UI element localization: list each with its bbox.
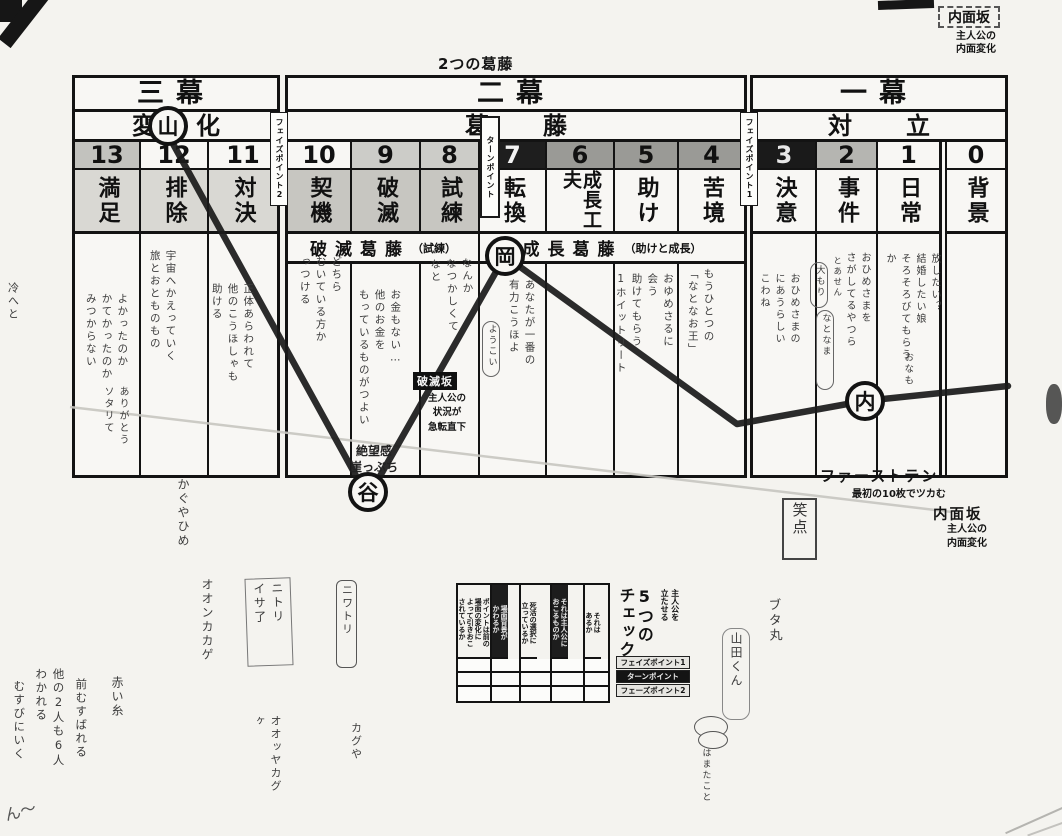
marker-hill: 岡 <box>485 236 525 276</box>
check-cell <box>458 673 490 687</box>
note-col4: もうひとつの 「なとなお王」 <box>684 268 716 380</box>
column-4-number: 4 <box>679 142 744 170</box>
beat-label-nichijo: 日常 <box>897 176 920 226</box>
band-seicho-title: 成長葛藤 <box>523 235 623 260</box>
phase-point-2-box: フェイズポイント2 <box>270 112 288 206</box>
marker-valley: 谷 <box>348 472 388 512</box>
check-cell <box>585 659 608 673</box>
note-col2-bubble-natonama: なとなま <box>816 310 834 390</box>
column-8: 8 試練 <box>421 142 480 234</box>
doodle-butamaru: ブタ丸 <box>763 598 785 673</box>
beat-label-tasuke: 助け <box>634 176 657 226</box>
check-col-5: それは あるか <box>585 585 608 701</box>
column-4: 4 苦境 <box>679 142 744 234</box>
doodle-musubareru: 前むすばれる <box>72 678 89 802</box>
note-col1-small: おなも <box>900 352 914 398</box>
check-col-3-header: 死活の選択に 立っているか <box>521 585 537 659</box>
doodle-oonkakage: オオンカカゲ <box>198 578 216 676</box>
marker-inner: 内 <box>845 381 885 421</box>
marker-mountain: 山 <box>148 106 188 146</box>
check-col-4-header: それは主人公に おこるものか <box>552 585 568 659</box>
check-col-1-header: ポイントは前の 場面の変化に よって引きおこ されているか <box>458 585 490 659</box>
note-col13-thanks: ありがとう ソタリて <box>100 386 130 450</box>
notes-cell-6 <box>547 264 615 475</box>
five-checks-row-labels: フェイズポイント1 ターンポイント フェーズポイント2 <box>616 656 690 698</box>
column-11: 11 対決 <box>209 142 277 234</box>
check-cell <box>521 659 550 673</box>
act-1-theme: 対立 <box>753 112 1005 142</box>
check-cell <box>552 687 583 701</box>
column-9-number: 9 <box>352 142 419 170</box>
column-8-beat-cell: 試練 <box>421 170 478 234</box>
beat-label-haikei: 背景 <box>964 176 987 226</box>
note-col7-bubble: ようこい <box>482 321 500 377</box>
doodle-hokano-futari: 他の2人も6人 わかれる <box>32 668 67 836</box>
column-0: 0 背景 <box>945 142 1005 234</box>
column-4-beat-cell: 苦境 <box>679 170 744 234</box>
check-cell <box>492 659 519 673</box>
check-col-5-header: それは あるか <box>585 585 601 659</box>
column-11-beat-cell: 対決 <box>209 170 277 234</box>
beat-label-seicho-kufu: 成長工夫 <box>560 170 600 231</box>
check-cell <box>521 687 550 701</box>
face-doodle-body <box>698 731 728 749</box>
column-5-number: 5 <box>615 142 677 170</box>
beat-label-tenkan: 転換 <box>501 176 524 226</box>
column-6: 6 成長工夫 <box>547 142 615 234</box>
page-title: 2つの葛藤 <box>438 53 513 74</box>
scanned-story-worksheet: 2つの葛藤 内面坂 主人公の 内面変化 三幕 変化 13 満足 12 排除 11… <box>0 0 1062 836</box>
doodle-left-edge: 冷へと <box>4 282 21 348</box>
beat-label-kukyo: 苦境 <box>700 176 723 226</box>
doodle-kaguya2: カグや <box>347 722 364 782</box>
inner-slope-corner-title: 内面坂 <box>938 6 1000 28</box>
doodle-shoten: 笑点 <box>782 498 817 560</box>
act-1-columns: 3 決意 2 事件 1 日常 0 背景 <box>753 142 1005 234</box>
act-1-title: 一幕 <box>753 78 1005 112</box>
check-col-2: 場面背景が かわるか <box>492 585 521 701</box>
row-label-phase-point-1: フェイズポイント1 <box>616 656 690 669</box>
hametsuzaka-body: 主人公の 状況が 急転直下 <box>416 392 478 435</box>
act-2-title: 二幕 <box>288 78 744 112</box>
check-cell <box>492 673 519 687</box>
column-3-number: 3 <box>753 142 815 170</box>
column-0-number: 0 <box>947 142 1005 170</box>
column-1-beat-cell: 日常 <box>878 170 939 234</box>
band-hametsu-sub: （試練） <box>412 240 456 256</box>
note-col2-small: とあせん <box>830 256 843 300</box>
column-5: 5 助け <box>615 142 679 234</box>
inner-slope-title: 内面坂 <box>933 503 983 524</box>
note-col10: どちら むいている方か っつける <box>296 256 343 358</box>
five-checks-table: ポイントは前の 場面の変化に よって引きおこ されているか 場面背景が かわるか… <box>456 583 610 703</box>
column-2-number: 2 <box>817 142 876 170</box>
column-3-beat-cell: 決意 <box>753 170 815 234</box>
doodle-niwatori: ニワトリ <box>336 580 357 668</box>
column-9-beat-cell: 破滅 <box>352 170 419 234</box>
column-1-number: 1 <box>878 142 939 170</box>
check-col-1: ポイントは前の 場面の変化に よって引きおこ されているか <box>458 585 492 701</box>
column-2: 2 事件 <box>817 142 878 234</box>
act-1-theme-text: 対立 <box>828 112 984 140</box>
check-col-3: 死活の選択に 立っているか <box>521 585 552 701</box>
act-3-columns: 13 満足 12 排除 11 対決 <box>75 142 277 234</box>
check-cell <box>492 687 519 701</box>
five-checks-title: 5つの チェック 主人公を 立たせる <box>616 587 680 659</box>
column-12-number: 12 <box>141 142 207 170</box>
check-cell <box>552 673 583 687</box>
doodle-hamatako: はまたこと <box>698 748 712 808</box>
check-cell <box>585 673 608 687</box>
doodle-yamadakun: 山田くん <box>722 628 750 720</box>
column-13: 13 満足 <box>75 142 141 234</box>
beat-label-shiren: 試練 <box>438 176 461 226</box>
check-col-4: それは主人公に おこるものか <box>552 585 585 701</box>
note-col9: お金もない… 他のお金を もっているものがつよい <box>355 289 402 441</box>
inner-slope-corner-subtitle: 主人公の 内面変化 <box>956 30 996 56</box>
band-seicho-sub: （助けと成長） <box>625 240 702 256</box>
note-col11: 正体あらわれて 他のこうほしゃも 助ける <box>208 283 255 403</box>
zetsubo-note: 絶望感 崖っぷち <box>338 444 410 475</box>
five-checks-title-small: 主人公を 立たせる <box>659 589 680 649</box>
first-ten-subtitle: 最初の10枚でツカむ <box>852 485 946 500</box>
note-col12: 宇宙へかえっていく 旅とおとものもの <box>146 250 178 372</box>
row-label-turn-point: ターンポイント <box>616 670 690 683</box>
column-0-beat-cell: 背景 <box>947 170 1005 234</box>
notes-cell-0 <box>945 234 1005 475</box>
beat-label-jiken: 事件 <box>835 176 858 226</box>
check-cell <box>585 687 608 701</box>
column-10-number: 10 <box>288 142 350 170</box>
check-cell <box>552 659 583 673</box>
doodle-ookkayakagu: オオッヤカグ ヶ <box>250 715 283 815</box>
act-2-theme: 葛藤 <box>288 112 744 142</box>
column-10-beat-cell: 契機 <box>288 170 350 234</box>
check-cell <box>458 659 490 673</box>
turn-point-box: ターンポイント <box>480 116 500 218</box>
column-13-beat-cell: 満足 <box>75 170 139 234</box>
column-12-beat-cell: 排除 <box>141 170 207 234</box>
scan-artifact-top-right-streak <box>878 0 934 10</box>
column-6-number: 6 <box>547 142 613 170</box>
five-checks-title-big: 5つの チェック <box>616 587 653 659</box>
first-ten-title: ファーストテン <box>820 465 938 486</box>
note-col1: 放したい？ 結婚したい娘 そろそろびてもらうか <box>882 253 942 367</box>
column-1: 1 日常 <box>878 142 942 234</box>
beat-label-keiki: 契機 <box>307 176 330 226</box>
note-col7: あなたが一番の 有力こうほよ <box>505 279 537 415</box>
doodle-kaguyahime: かぐやひめ <box>174 478 192 570</box>
note-col2-bubble-omori: 大もり <box>810 262 828 308</box>
column-11-number: 11 <box>209 142 277 170</box>
column-10: 10 契機 <box>288 142 352 234</box>
check-cell <box>521 673 550 687</box>
beat-label-manzoku: 満足 <box>95 176 118 226</box>
phase-point-1-box: フェイズポイント1 <box>740 112 758 206</box>
column-6-beat-cell: 成長工夫 <box>547 170 613 234</box>
scan-artifact-corner-fold-1 <box>1005 800 1062 834</box>
column-8-number: 8 <box>421 142 478 170</box>
hametsuzaka-label: 破滅坂 <box>413 372 457 390</box>
note-col5: おゆめさるに 会う 助けてもらう 1ホイットリート <box>612 273 675 439</box>
beat-label-ketsui: 決意 <box>772 176 795 226</box>
column-13-number: 13 <box>75 142 139 170</box>
note-col3: おひめさまの にあうらしい こわね <box>756 273 801 357</box>
act-2-columns: 10 契機 9 破滅 8 試練 7 転換 6 成長工夫 5 助け <box>288 142 744 234</box>
doodle-futari-box: ニトリ イサ了 <box>244 577 293 667</box>
row-label-phase-point-2: フェーズポイント2 <box>616 684 690 697</box>
column-9: 9 破滅 <box>352 142 421 234</box>
note-col8: なんか なつかしくて なと <box>426 257 477 361</box>
column-12: 12 排除 <box>141 142 209 234</box>
beat-label-hametsu: 破滅 <box>374 176 397 226</box>
scan-artifact-right-edge <box>1046 384 1062 424</box>
check-cell <box>458 687 490 701</box>
doodle-musubini: むすびにいく <box>10 680 27 780</box>
five-checks-grid: ポイントは前の 場面の変化に よって引きおこ されているか 場面背景が かわるか… <box>456 583 610 703</box>
column-3: 3 決意 <box>753 142 817 234</box>
note-col2: おひめさまを さがしてるやつら <box>842 252 872 396</box>
beat-label-haijo: 排除 <box>162 176 185 226</box>
inner-slope-subtitle: 主人公の 内面変化 <box>947 523 987 551</box>
check-col-2-header: 場面背景が かわるか <box>492 585 508 659</box>
beat-label-taiketsu: 対決 <box>231 176 254 226</box>
column-5-beat-cell: 助け <box>615 170 677 234</box>
column-2-beat-cell: 事件 <box>817 170 876 234</box>
doodle-akaiito: 赤い糸 <box>108 676 126 744</box>
